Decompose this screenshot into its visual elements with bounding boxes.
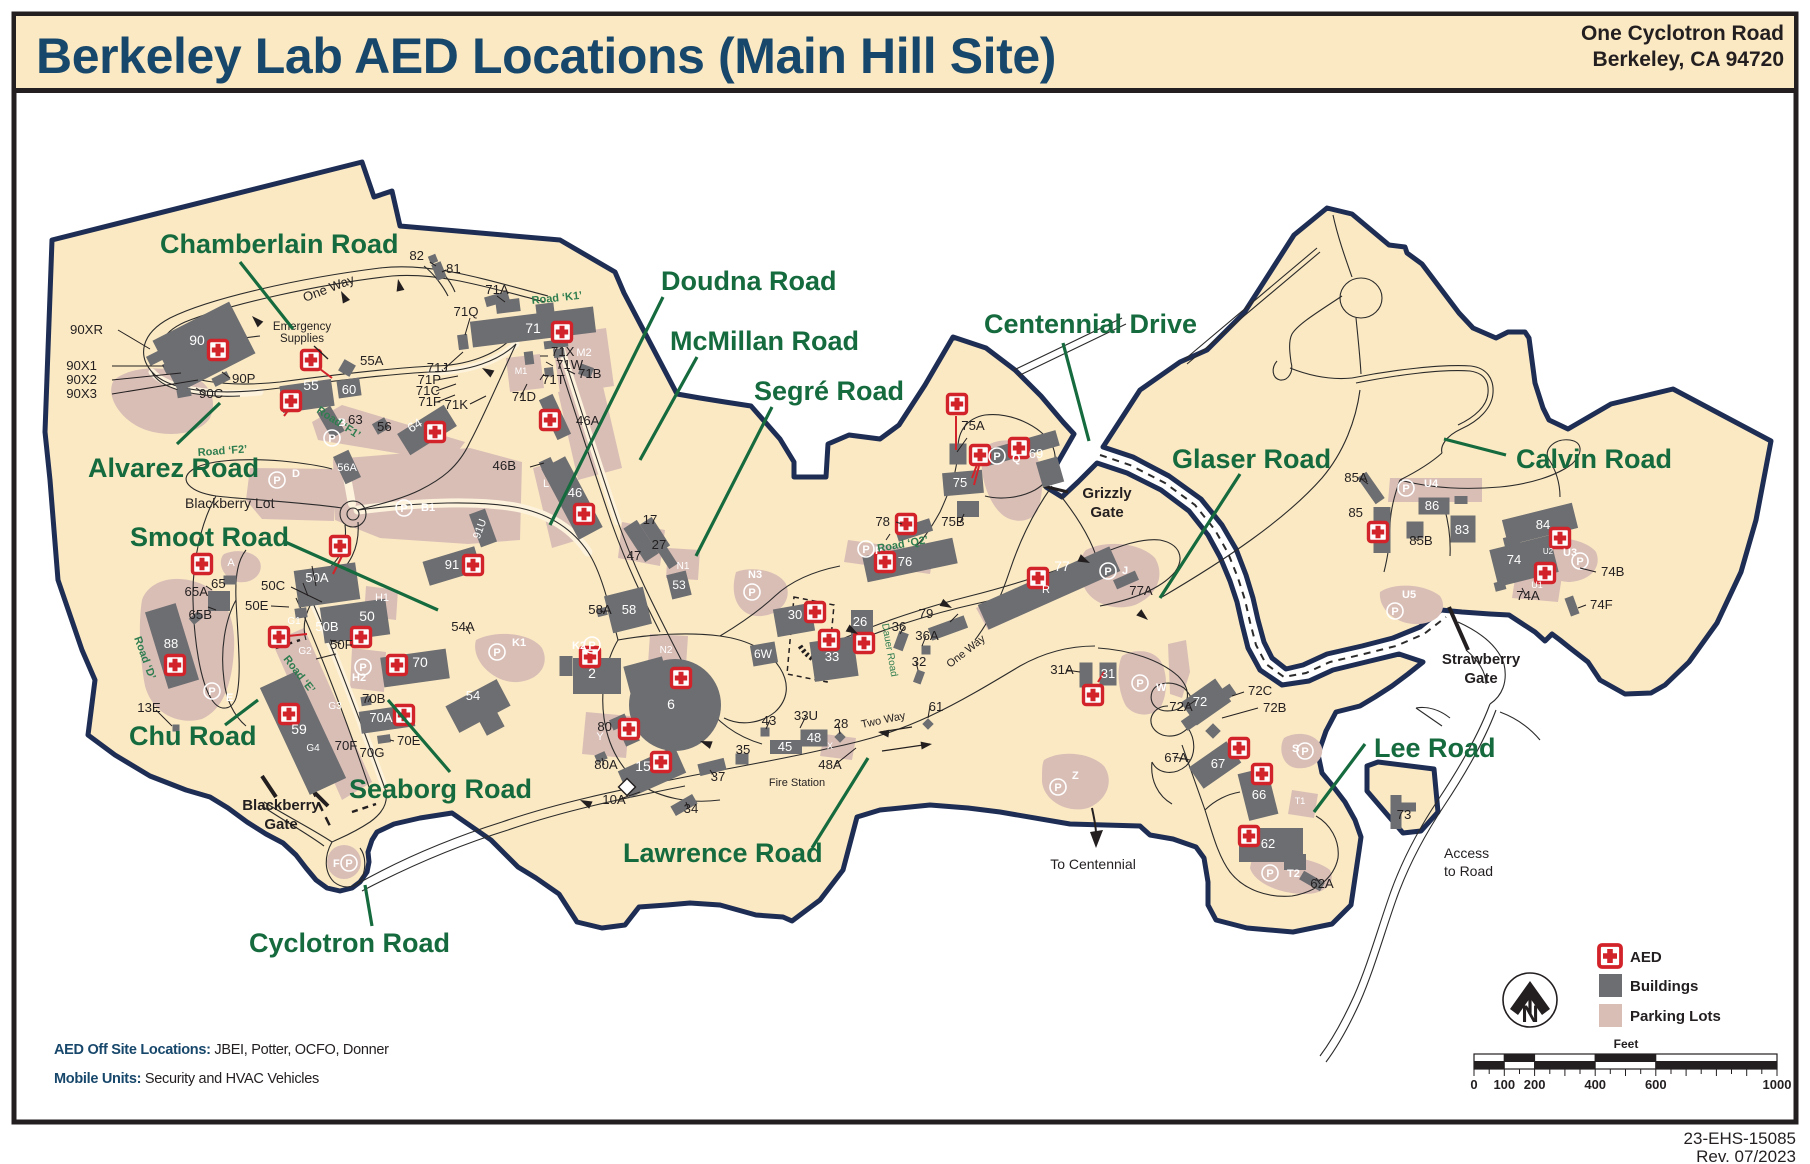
svg-text:72A: 72A <box>1169 699 1193 714</box>
svg-text:Lawrence Road: Lawrence Road <box>623 838 823 868</box>
svg-text:58: 58 <box>622 602 636 617</box>
svg-text:81: 81 <box>446 261 461 276</box>
svg-text:77: 77 <box>1054 558 1070 574</box>
svg-text:50A: 50A <box>305 570 328 585</box>
svg-text:33U: 33U <box>794 708 818 723</box>
svg-text:Rev. 07/2023: Rev. 07/2023 <box>1696 1147 1796 1164</box>
svg-text:54: 54 <box>466 688 480 703</box>
svg-text:P: P <box>1136 678 1143 690</box>
svg-text:78: 78 <box>875 514 890 529</box>
svg-text:P: P <box>328 433 335 445</box>
svg-text:Seaborg Road: Seaborg Road <box>349 774 532 804</box>
svg-text:90P: 90P <box>232 371 256 386</box>
svg-text:59: 59 <box>291 721 307 737</box>
svg-text:D: D <box>292 468 300 480</box>
svg-text:85: 85 <box>1348 505 1363 520</box>
svg-text:P: P <box>1266 868 1273 880</box>
svg-text:58A: 58A <box>588 602 612 617</box>
svg-text:60: 60 <box>342 382 356 397</box>
svg-text:71K: 71K <box>445 397 469 412</box>
svg-text:Buildings: Buildings <box>1630 978 1698 995</box>
svg-text:U4: U4 <box>1424 478 1439 490</box>
svg-text:74F: 74F <box>1590 597 1613 612</box>
svg-text:P: P <box>1391 606 1398 618</box>
svg-text:P: P <box>345 858 352 870</box>
svg-text:E: E <box>226 692 233 704</box>
svg-text:Blackberry: Blackberry <box>242 797 320 814</box>
svg-text:26: 26 <box>853 614 867 629</box>
svg-text:200: 200 <box>1524 1077 1546 1092</box>
svg-text:69: 69 <box>1029 446 1043 461</box>
svg-text:J: J <box>1122 565 1128 577</box>
svg-text:0: 0 <box>1470 1077 1477 1092</box>
svg-text:82: 82 <box>409 248 424 263</box>
svg-text:Lee Road: Lee Road <box>1374 733 1496 763</box>
svg-text:70F: 70F <box>335 738 358 753</box>
svg-text:32: 32 <box>912 654 927 669</box>
svg-text:N3: N3 <box>748 569 762 581</box>
svg-text:U2: U2 <box>1543 547 1554 556</box>
svg-text:H2: H2 <box>352 672 366 684</box>
svg-text:72: 72 <box>1193 694 1207 709</box>
svg-text:56: 56 <box>377 419 392 434</box>
svg-text:80: 80 <box>597 719 612 734</box>
svg-text:50F: 50F <box>330 637 353 652</box>
svg-text:76: 76 <box>898 554 912 569</box>
svg-text:56A: 56A <box>337 462 357 474</box>
svg-text:Fire Station: Fire Station <box>769 777 825 789</box>
svg-text:K2: K2 <box>572 640 586 652</box>
svg-text:to Road: to Road <box>1444 863 1493 879</box>
svg-text:Doudna Road: Doudna Road <box>661 266 837 296</box>
svg-text:15: 15 <box>635 758 651 774</box>
svg-text:G4: G4 <box>306 743 320 754</box>
svg-text:P: P <box>273 475 280 487</box>
svg-text:85A: 85A <box>1344 470 1368 485</box>
svg-text:Q: Q <box>1012 453 1021 465</box>
svg-text:70: 70 <box>412 654 428 670</box>
svg-text:67: 67 <box>1211 756 1225 771</box>
svg-text:Gate: Gate <box>1464 670 1497 687</box>
svg-text:Gate: Gate <box>1090 504 1123 521</box>
svg-text:71D: 71D <box>512 389 536 404</box>
svg-text:Z: Z <box>1072 770 1079 782</box>
svg-text:G3: G3 <box>328 701 342 712</box>
svg-text:36: 36 <box>892 619 907 634</box>
svg-text:P: P <box>588 640 595 652</box>
svg-text:61: 61 <box>929 699 944 714</box>
svg-text:Feet: Feet <box>1614 1037 1639 1051</box>
svg-text:Calvin Road: Calvin Road <box>1516 444 1672 474</box>
svg-text:53: 53 <box>672 578 686 592</box>
svg-text:Parking Lots: Parking Lots <box>1630 1008 1721 1025</box>
svg-text:Cyclotron Road: Cyclotron Road <box>249 928 450 958</box>
svg-text:K1: K1 <box>512 637 526 649</box>
svg-text:P: P <box>493 647 500 659</box>
svg-text:Centennial Drive: Centennial Drive <box>984 309 1197 339</box>
svg-text:H1: H1 <box>375 592 389 604</box>
svg-text:Berkeley, CA 94720: Berkeley, CA 94720 <box>1593 48 1784 71</box>
svg-text:91: 91 <box>445 557 459 572</box>
svg-text:65B: 65B <box>189 607 213 622</box>
svg-text:75B: 75B <box>941 514 965 529</box>
svg-text:Chamberlain Road: Chamberlain Road <box>160 229 399 259</box>
svg-text:N1: N1 <box>677 561 690 572</box>
svg-text:90X2: 90X2 <box>66 372 97 387</box>
svg-text:71B: 71B <box>578 366 602 381</box>
svg-text:U5: U5 <box>1402 589 1416 601</box>
svg-text:34: 34 <box>684 801 699 816</box>
svg-text:2: 2 <box>588 665 596 681</box>
svg-text:X: X <box>827 741 833 751</box>
svg-text:86: 86 <box>1425 498 1439 513</box>
svg-text:45: 45 <box>778 739 792 754</box>
svg-text:6: 6 <box>667 696 675 712</box>
svg-text:Emergency: Emergency <box>273 321 331 333</box>
svg-text:71: 71 <box>525 320 541 336</box>
svg-text:90XR: 90XR <box>70 322 103 337</box>
svg-text:62: 62 <box>1261 836 1275 851</box>
svg-text:P: P <box>993 451 1000 463</box>
svg-text:65A: 65A <box>185 584 209 599</box>
svg-text:72C: 72C <box>1248 683 1273 698</box>
svg-text:G1: G1 <box>287 616 301 627</box>
svg-text:AED: AED <box>1630 949 1662 966</box>
svg-text:R: R <box>1042 584 1050 596</box>
svg-text:Chu Road: Chu Road <box>129 721 257 751</box>
svg-text:Segré Road: Segré Road <box>754 376 904 406</box>
svg-text:U3: U3 <box>1563 547 1577 559</box>
svg-text:G2: G2 <box>298 646 312 657</box>
svg-text:100: 100 <box>1493 1077 1515 1092</box>
svg-text:P: P <box>1104 566 1111 578</box>
svg-text:75A: 75A <box>961 418 985 433</box>
svg-text:50B: 50B <box>315 619 338 634</box>
svg-text:W: W <box>1156 682 1167 694</box>
svg-text:Berkeley Lab AED Locations (Ma: Berkeley Lab AED Locations (Main Hill Si… <box>36 28 1056 84</box>
svg-text:37: 37 <box>711 769 726 784</box>
svg-text:77A: 77A <box>1129 583 1153 598</box>
svg-text:600: 600 <box>1645 1077 1667 1092</box>
svg-text:50: 50 <box>359 608 375 624</box>
svg-text:S: S <box>1292 743 1299 755</box>
svg-text:Grizzly: Grizzly <box>1082 485 1132 502</box>
svg-text:27: 27 <box>652 537 667 552</box>
svg-text:P: P <box>862 544 869 556</box>
svg-text:Glaser Road: Glaser Road <box>1172 444 1331 474</box>
svg-text:One Cyclotron Road: One Cyclotron Road <box>1581 22 1784 45</box>
svg-text:74B: 74B <box>1601 564 1625 579</box>
svg-text:P: P <box>1301 746 1308 758</box>
svg-text:71Q: 71Q <box>454 304 479 319</box>
svg-text:31: 31 <box>1101 666 1115 681</box>
svg-text:P: P <box>400 503 407 515</box>
svg-text:B1: B1 <box>421 502 435 514</box>
svg-text:13E: 13E <box>137 700 161 715</box>
svg-text:46A: 46A <box>576 413 600 428</box>
svg-text:46B: 46B <box>493 458 517 473</box>
svg-text:Access: Access <box>1444 845 1489 861</box>
svg-text:75: 75 <box>953 475 967 490</box>
svg-text:T1: T1 <box>1295 796 1306 806</box>
svg-text:To Centennial: To Centennial <box>1050 856 1136 872</box>
svg-text:79: 79 <box>919 606 934 621</box>
svg-text:P: P <box>1054 782 1061 794</box>
svg-text:35: 35 <box>736 742 751 757</box>
svg-text:48A: 48A <box>818 757 842 772</box>
svg-text:90C: 90C <box>199 386 224 401</box>
svg-text:P: P <box>208 686 215 698</box>
svg-text:Mobile Units: Security and HVA: Mobile Units: Security and HVAC Vehicles <box>54 1071 319 1087</box>
svg-text:70G: 70G <box>360 745 385 760</box>
svg-text:L: L <box>543 478 549 490</box>
svg-text:88: 88 <box>164 636 178 651</box>
svg-text:31A: 31A <box>1050 662 1074 677</box>
svg-text:6W: 6W <box>754 647 773 661</box>
svg-text:90X3: 90X3 <box>66 386 97 401</box>
svg-text:48: 48 <box>807 730 821 745</box>
svg-text:65: 65 <box>211 576 226 591</box>
svg-text:50E: 50E <box>245 598 269 613</box>
svg-text:66: 66 <box>1252 787 1266 802</box>
svg-text:84: 84 <box>1536 517 1550 532</box>
svg-text:AED Off Site Locations: JBEI,: AED Off Site Locations: JBEI, Potter, OC… <box>54 1042 389 1058</box>
svg-text:Gate: Gate <box>264 816 297 833</box>
svg-text:P: P <box>1402 483 1409 495</box>
svg-text:74A: 74A <box>1516 588 1540 603</box>
svg-text:Alvarez Road: Alvarez Road <box>88 453 259 483</box>
svg-text:Supplies: Supplies <box>280 333 324 345</box>
svg-text:McMillan Road: McMillan Road <box>670 326 859 356</box>
svg-text:17: 17 <box>643 512 658 527</box>
svg-text:N: N <box>1521 1001 1538 1028</box>
svg-text:33: 33 <box>825 649 839 664</box>
svg-text:P: P <box>748 587 755 599</box>
svg-text:62A: 62A <box>1310 876 1334 891</box>
svg-text:30: 30 <box>788 607 802 622</box>
svg-text:Strawberry: Strawberry <box>1442 651 1521 668</box>
svg-text:F: F <box>333 858 340 870</box>
svg-text:43: 43 <box>762 713 777 728</box>
svg-text:83: 83 <box>1455 522 1469 537</box>
svg-text:47: 47 <box>627 548 642 563</box>
svg-text:55: 55 <box>303 377 319 393</box>
svg-text:90X1: 90X1 <box>66 358 97 373</box>
svg-text:P: P <box>1576 556 1583 568</box>
svg-text:71A: 71A <box>485 282 509 297</box>
svg-text:74: 74 <box>1507 552 1521 567</box>
svg-text:73: 73 <box>1397 807 1412 822</box>
svg-text:1000: 1000 <box>1763 1077 1792 1092</box>
svg-text:400: 400 <box>1584 1077 1606 1092</box>
svg-text:10A: 10A <box>602 792 626 807</box>
svg-text:80A: 80A <box>594 757 618 772</box>
svg-text:28: 28 <box>834 716 849 731</box>
svg-text:70A: 70A <box>369 710 392 725</box>
svg-text:Blackberry Lot: Blackberry Lot <box>185 495 275 511</box>
svg-text:A: A <box>227 557 235 569</box>
svg-text:90: 90 <box>189 332 205 348</box>
svg-text:54A: 54A <box>451 619 475 634</box>
svg-text:Smoot Road: Smoot Road <box>130 522 289 552</box>
svg-text:85B: 85B <box>1409 533 1433 548</box>
svg-text:36A: 36A <box>915 628 939 643</box>
svg-text:50C: 50C <box>261 578 286 593</box>
svg-text:71T: 71T <box>542 372 565 387</box>
svg-text:55A: 55A <box>360 353 384 368</box>
svg-text:23-EHS-15085: 23-EHS-15085 <box>1684 1129 1796 1148</box>
svg-text:N2: N2 <box>660 645 673 656</box>
svg-text:T2: T2 <box>1287 868 1300 880</box>
svg-text:70B: 70B <box>362 691 386 706</box>
svg-text:72B: 72B <box>1263 700 1287 715</box>
svg-text:M1: M1 <box>515 366 528 376</box>
